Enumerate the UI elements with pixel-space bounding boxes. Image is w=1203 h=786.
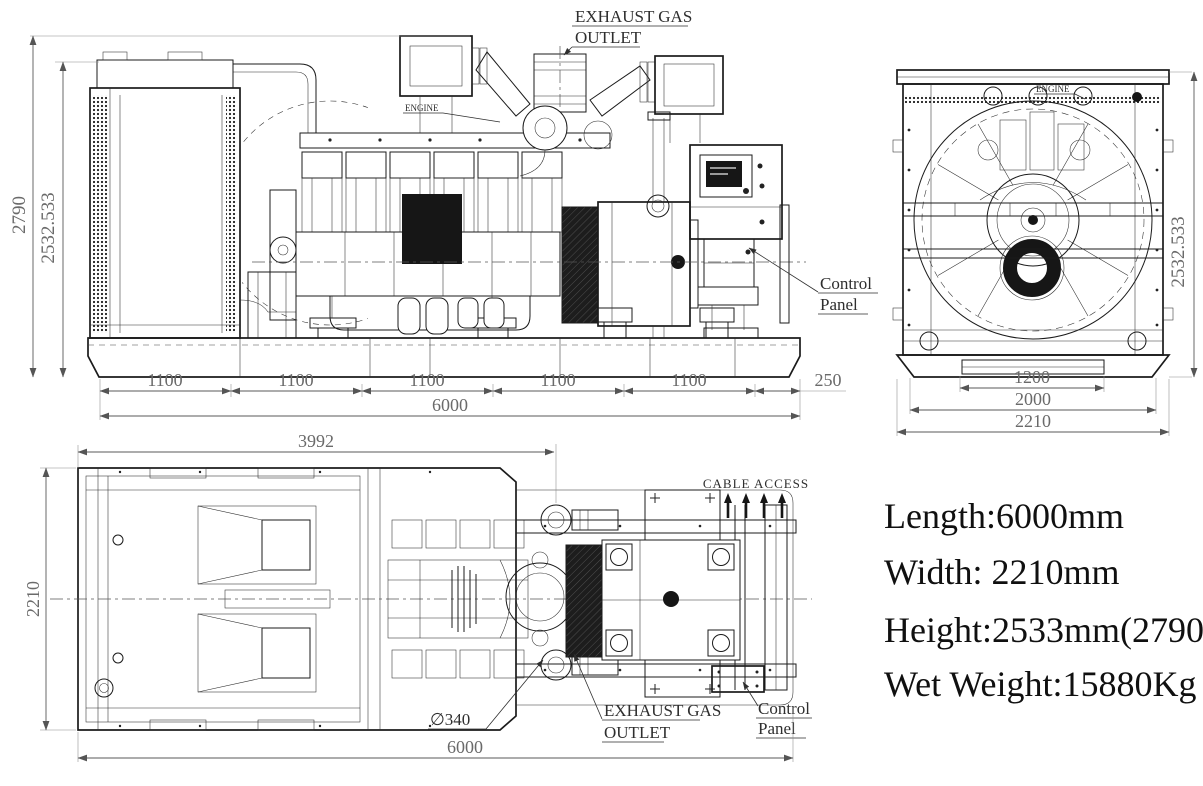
mounting-feet — [310, 296, 734, 338]
dim-2532-side: 2532.533 — [38, 192, 59, 263]
genset-drawing-page: ENGINE EXHAUST GAS OUTLET Control Panel … — [0, 0, 1203, 786]
panel-label-plan: Panel — [758, 719, 796, 738]
spec-wet-weight: Wet Weight:15880Kg — [884, 664, 1197, 704]
outlet-label-plan: OUTLET — [604, 723, 671, 742]
dim-1200: 1200 — [1014, 367, 1050, 387]
engine-label-side: ENGINE — [403, 103, 500, 122]
dia-340-text: ∅340 — [430, 710, 470, 729]
exhaust-label-plan: EXHAUST GAS OUTLET — [574, 654, 721, 742]
dim-1100-4: 1100 — [540, 370, 575, 390]
dim-3992: 3992 — [298, 431, 334, 451]
drawing-canvas: ENGINE EXHAUST GAS OUTLET Control Panel … — [0, 0, 1203, 786]
exhaust-gas-label-plan: EXHAUST GAS — [604, 701, 721, 720]
cross-beam-upper — [903, 203, 1163, 216]
dim-2790: 2790 — [9, 196, 30, 234]
fan-hub — [987, 174, 1079, 300]
cable-access-label: CABLE ACCESS — [703, 476, 809, 491]
spec-block: Length:6000mm Width: 2210mm Height:2533m… — [884, 496, 1203, 704]
control-panel-side — [690, 145, 789, 338]
engine-label-text-front: ENGINE — [1036, 84, 1070, 94]
exhaust-diameter-label: ∅340 — [428, 660, 543, 729]
panel-label-text: Panel — [820, 295, 858, 314]
alternator-side — [562, 112, 698, 338]
control-panel-label-side: Control Panel — [749, 248, 878, 314]
dim-1100-5: 1100 — [671, 370, 706, 390]
engine-side — [270, 133, 610, 334]
dim-2210-plan: 2210 — [23, 581, 43, 617]
control-label-plan: Control — [758, 699, 810, 718]
dim-1100-1: 1100 — [147, 370, 182, 390]
spec-width: Width: 2210mm — [884, 552, 1120, 592]
rocker-covers — [302, 152, 562, 178]
side-view: ENGINE EXHAUST GAS OUTLET Control Panel … — [9, 7, 878, 420]
plan-view: Control Panel CABLE ACCESS EXHAUST GAS O… — [23, 431, 812, 762]
front-view: ENGINE 1200 2000 2210 2532.533 — [893, 70, 1194, 436]
dim-2000: 2000 — [1015, 389, 1051, 409]
turbocharger — [523, 106, 567, 150]
fuel-filters — [398, 298, 504, 334]
dim-250: 250 — [815, 370, 842, 390]
radiator — [90, 52, 316, 338]
spec-height: Height:2533mm(2790) — [884, 610, 1203, 650]
dim-1100-3: 1100 — [409, 370, 444, 390]
outlet-label: OUTLET — [575, 28, 642, 47]
exhaust-label-side: EXHAUST GAS OUTLET — [564, 7, 692, 55]
fan-drive-cluster — [402, 194, 462, 264]
dim-6000-side: 6000 — [432, 395, 468, 415]
spec-length: Length:6000mm — [884, 496, 1124, 536]
exhaust-gas-label: EXHAUST GAS — [575, 7, 692, 26]
dim-2532-front: 2532.533 — [1168, 216, 1189, 287]
engine-label-text: ENGINE — [405, 103, 439, 113]
control-label-text: Control — [820, 274, 872, 293]
fan-guards — [95, 506, 330, 697]
control-panel-leader — [749, 248, 818, 292]
alternator-inlet-plan — [566, 545, 602, 657]
alternator-inlet-screen — [562, 207, 598, 323]
dim-1100-2: 1100 — [278, 370, 313, 390]
dim-2210-front: 2210 — [1015, 411, 1051, 431]
alternator-plan — [566, 540, 740, 660]
engine-silhouette-front — [978, 112, 1090, 200]
dim-6000-plan: 6000 — [447, 737, 483, 757]
crank-pulley — [1010, 246, 1054, 290]
